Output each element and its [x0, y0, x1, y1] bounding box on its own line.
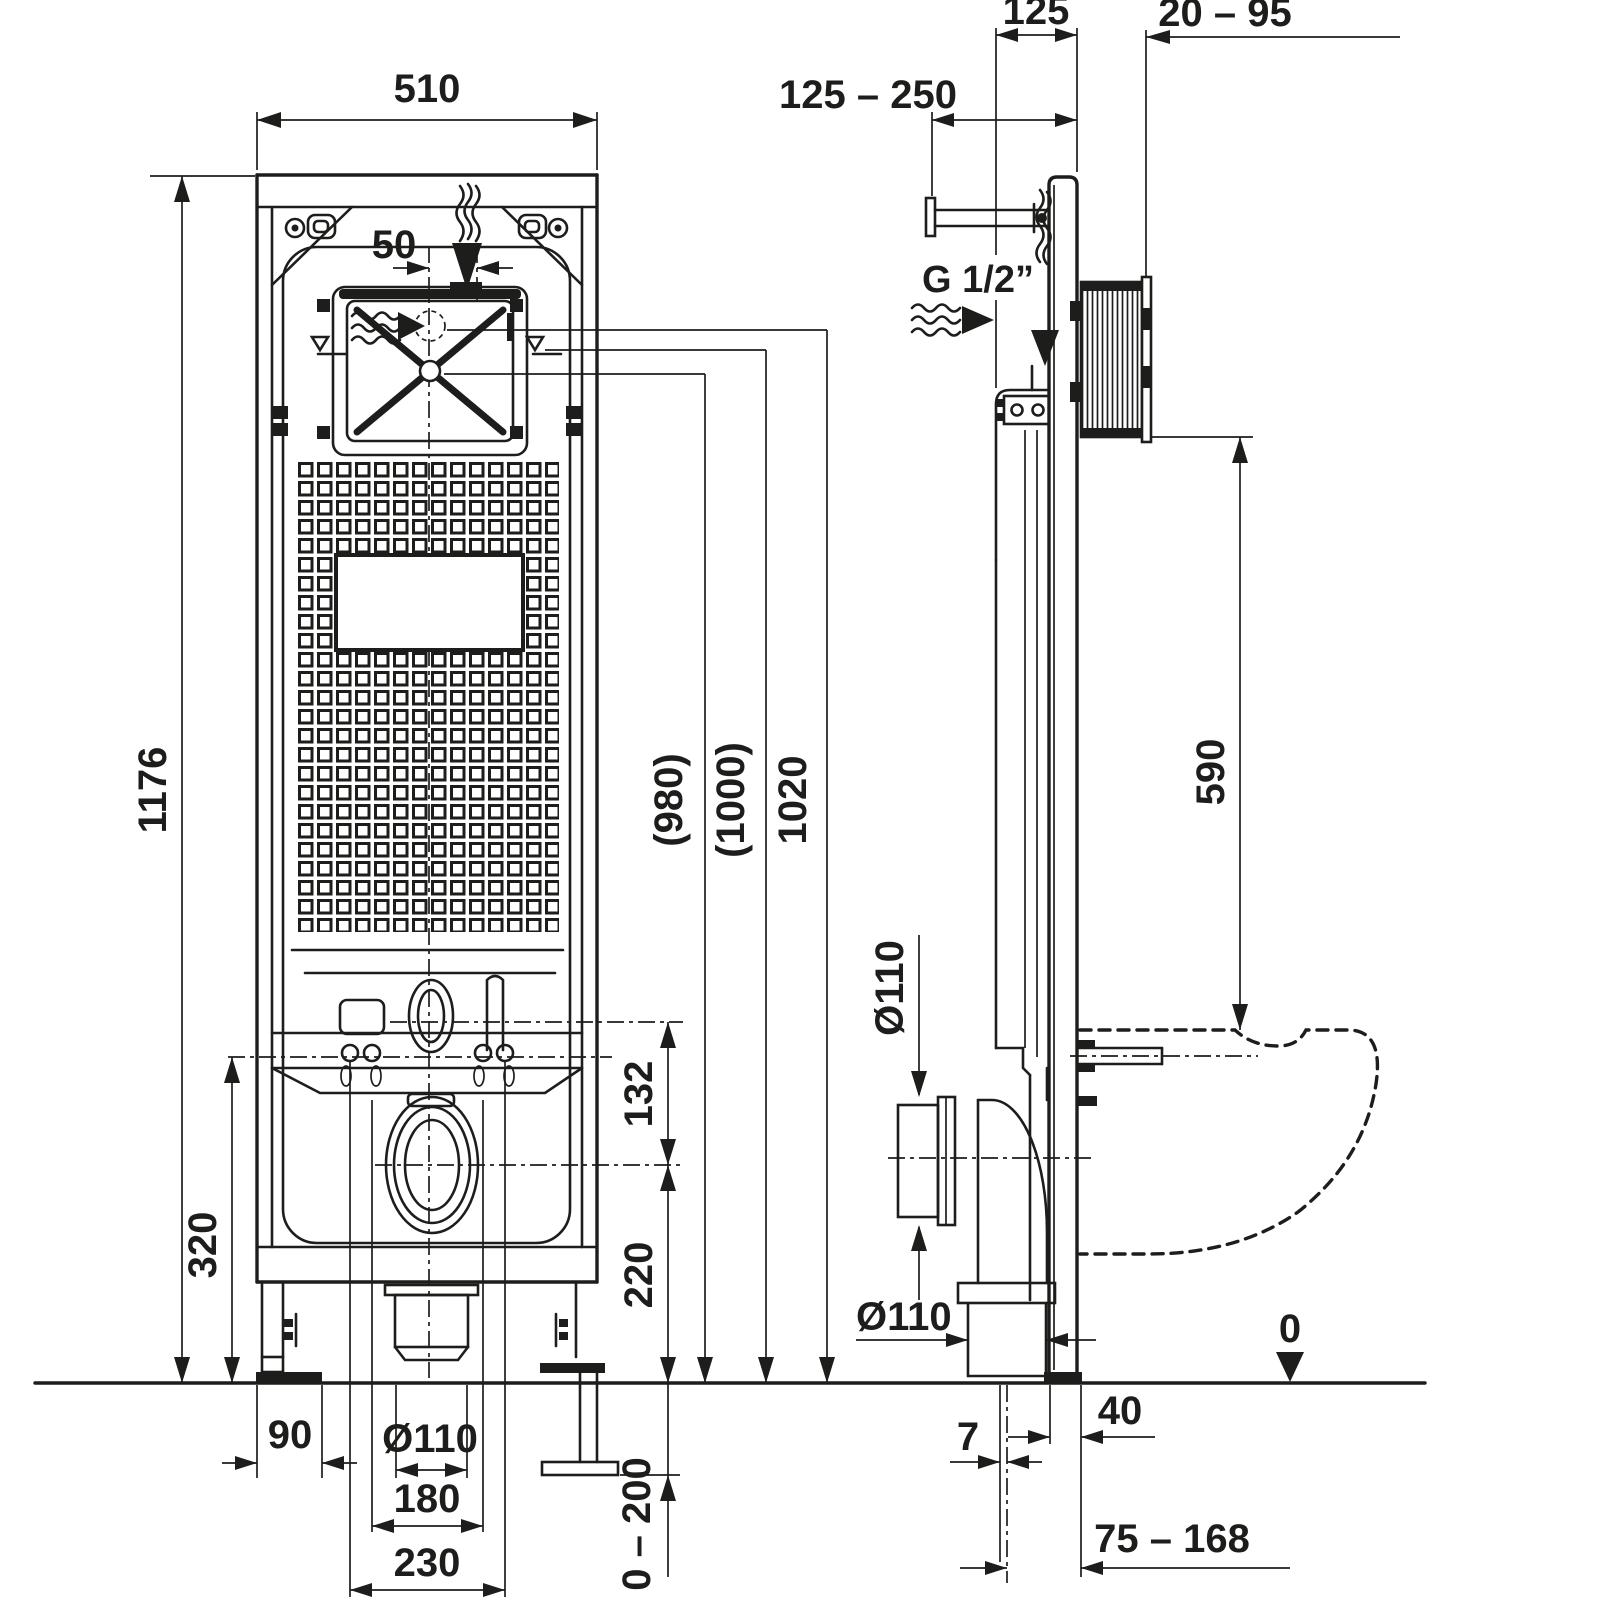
- dim-label: 0: [1279, 1307, 1301, 1351]
- dimension-drawing: 510 50 1176 1020 (1000) (980): [0, 0, 1600, 1600]
- dim-width-510: 510: [257, 67, 597, 170]
- dim-label: 7: [957, 1415, 979, 1459]
- flush-plate-opening: [336, 555, 523, 650]
- frame-upright: [996, 177, 1077, 1372]
- dim-label: 510: [394, 67, 461, 111]
- dim-label: 220: [617, 1242, 661, 1309]
- cistern-access-box: [317, 287, 527, 455]
- floor-reference: 0: [1276, 1307, 1304, 1382]
- dim-label: 230: [394, 1541, 461, 1585]
- water-inlet-front: [450, 184, 482, 300]
- dim-label: Ø110: [382, 1417, 478, 1461]
- drain-socket-front: [385, 1285, 478, 1360]
- dim-label: (980): [647, 753, 691, 846]
- dim-label: 40: [1098, 1389, 1143, 1433]
- dim-label: 1176: [131, 747, 175, 834]
- dim-label: 590: [1189, 739, 1233, 806]
- dim-label: 75 – 168: [1094, 1517, 1250, 1561]
- dim-label: 180: [394, 1477, 461, 1521]
- dim-label: 90: [268, 1413, 313, 1457]
- perforated-plate: [292, 462, 563, 973]
- dim-label: 125 – 250: [779, 73, 957, 117]
- dim-label: 1020: [771, 756, 815, 845]
- front-view: 510 50 1176 1020 (1000) (980): [131, 67, 835, 1597]
- dim-label: 125: [1003, 0, 1070, 33]
- dim-label: 0 – 200: [615, 1457, 659, 1590]
- dim-label: Ø110: [868, 940, 912, 1036]
- dim-label: (1000): [709, 742, 753, 858]
- side-foot-plate: [1044, 1372, 1082, 1383]
- connection-collar: [898, 1097, 955, 1225]
- mounting-bracket: [997, 396, 1049, 424]
- bowl-spigot: [1070, 1040, 1258, 1106]
- dim-132-220: 132 220: [617, 1022, 676, 1383]
- water-level-symbols: [312, 337, 561, 354]
- dim-label: G 1/2”: [922, 259, 1034, 301]
- dim-below-floor: 90 Ø110 180 230: [222, 1062, 505, 1597]
- side-view: G 1/2” 125 20 – 95: [779, 0, 1400, 1583]
- lower-assembly: [228, 976, 683, 1233]
- dim-label: 132: [617, 1061, 661, 1128]
- dim-height-1176: 1176: [131, 176, 255, 1383]
- dim-label: 320: [181, 1212, 225, 1279]
- dim-320: 320: [181, 1057, 240, 1383]
- wall-anchor-rod: [926, 198, 1049, 236]
- dim-label: Ø110: [856, 1295, 952, 1339]
- flush-plate-housing: [1070, 277, 1151, 442]
- dim-label: 20 – 95: [1158, 0, 1291, 35]
- dim-inlet-50: 50: [372, 223, 513, 275]
- dim-label: 50: [372, 223, 417, 267]
- dim-below-floor-side: 7 40 75 – 168: [950, 1385, 1290, 1583]
- dim-590: 590: [1151, 437, 1253, 1030]
- dim-feet-range: 0 – 200: [615, 1383, 680, 1591]
- technical-drawing-page: 510 50 1176 1020 (1000) (980): [0, 0, 1600, 1600]
